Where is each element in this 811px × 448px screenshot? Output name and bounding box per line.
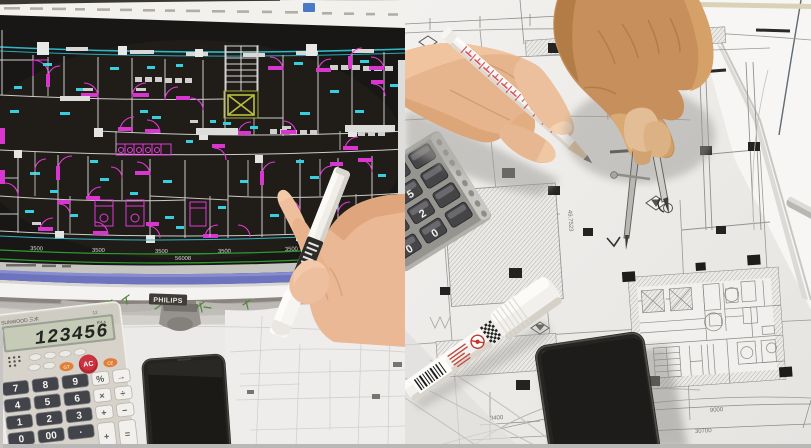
- svg-text:00: 00: [45, 430, 58, 442]
- svg-text:+: +: [103, 431, 109, 442]
- svg-text:AC: AC: [83, 361, 94, 369]
- svg-text:GT: GT: [63, 364, 70, 370]
- svg-text:→: →: [116, 371, 126, 382]
- svg-text:×: ×: [99, 391, 105, 402]
- svg-text:+: +: [101, 407, 107, 418]
- svg-text:KH·s: KH·s: [97, 319, 106, 325]
- svg-text:9000: 9000: [710, 407, 724, 414]
- svg-text:%: %: [96, 373, 105, 384]
- svg-text:−: −: [122, 405, 128, 416]
- svg-text:30700: 30700: [695, 428, 713, 435]
- svg-text:=: =: [124, 429, 130, 440]
- svg-text:CE: CE: [107, 360, 114, 366]
- svg-text:56008: 56008: [175, 256, 191, 262]
- svg-text:PHILIPS: PHILIPS: [153, 297, 183, 305]
